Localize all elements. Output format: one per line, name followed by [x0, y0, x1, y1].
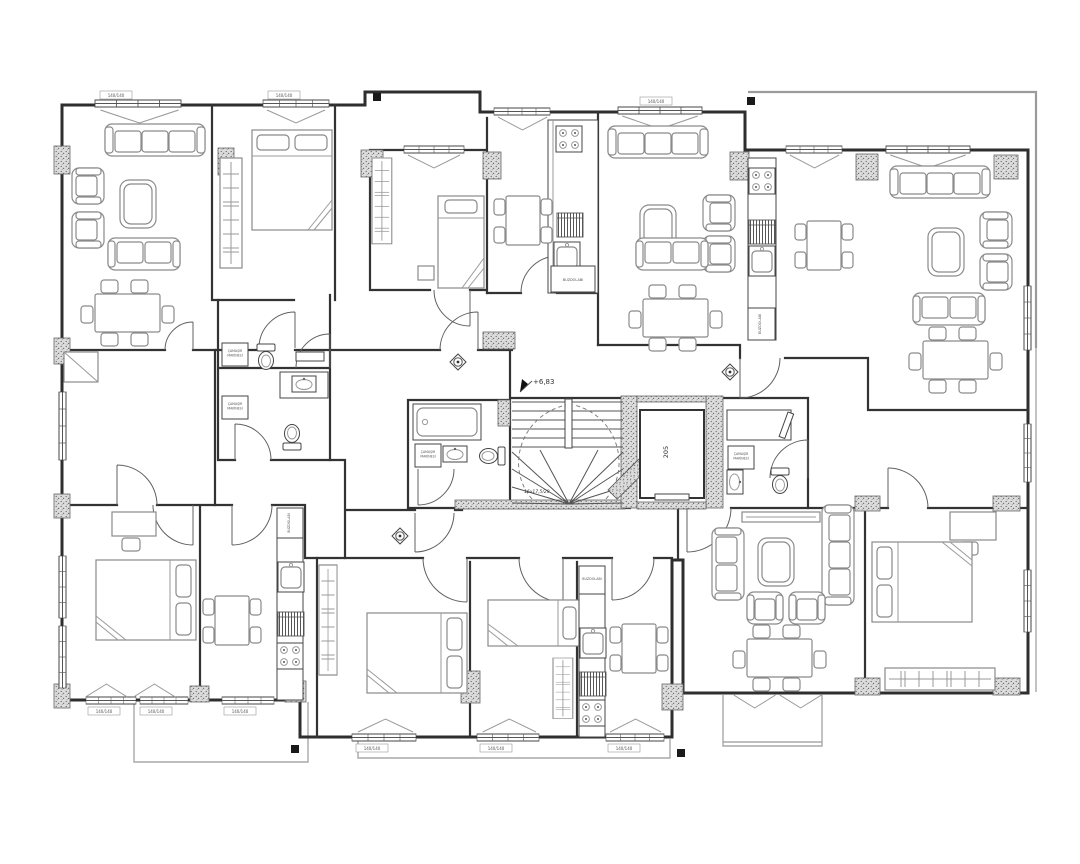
bathroom-left-2: ÇAMAŞIR MAKİNESİ	[222, 372, 328, 450]
bedroom-bottom-middle-2	[488, 600, 580, 719]
window-tag: 140/140	[148, 709, 165, 714]
fridge-label-1: BUZDOLABI	[563, 278, 584, 282]
bedroom-bottom-left	[96, 512, 196, 640]
bedroom-top-middle	[372, 158, 484, 288]
window-tag: 140/140	[616, 746, 633, 751]
kitchen-top-middle: BUZDOLABI	[494, 120, 598, 293]
fridge-label-2: BUZDOLABI	[758, 314, 762, 335]
kitchen-bottom-middle: BUZDOLABI	[579, 566, 668, 737]
living-top-middle-right	[608, 126, 735, 351]
level-label: +6,83	[533, 378, 554, 386]
bedroom-top-left	[220, 130, 332, 268]
level-marker: +6,83	[520, 378, 554, 392]
window-tag: 140/140	[488, 746, 505, 751]
fridge-label-4: BUZDOLABI	[582, 577, 601, 581]
living-bottom-right	[712, 505, 854, 691]
bathroom-left-1: ÇAMAŞIR MAKİNESİ	[222, 343, 324, 370]
kitchen-top-right: BUZDOLABI	[748, 158, 853, 340]
fridge-label-3: BUZDOLABI	[287, 513, 291, 532]
window-tag: 140/140	[648, 99, 665, 104]
window-tag: 140/140	[232, 709, 249, 714]
washer-label-3a: ÇAMAŞIR	[421, 450, 436, 454]
washer-label-4b: MAKİNESİ	[733, 456, 748, 461]
bathroom-core-left: ÇAMAŞIR MAKİNESİ	[413, 404, 505, 467]
window-tag: 140/140	[364, 746, 381, 751]
bathroom-core-right: ÇAMAŞIR MAKİNESİ	[727, 410, 794, 494]
bedroom-bottom-middle-1	[319, 565, 467, 693]
bedroom-bottom-right	[872, 512, 996, 690]
washer-label-2a: ÇAMAŞIR	[228, 402, 243, 406]
kitchen-bottom-left: BUZDOLABI	[203, 508, 304, 700]
washer-label-4a: ÇAMAŞIR	[734, 452, 749, 456]
apartment-top-left-living	[72, 124, 205, 346]
washer-label-1a: ÇAMAŞIR	[228, 349, 243, 353]
washer-label-2b: MAKİNESİ	[227, 406, 242, 411]
window-tag: 140/140	[108, 93, 125, 98]
entry-hall-left	[64, 352, 98, 382]
living-top-right	[890, 166, 1012, 393]
washer-label-3b: MAKİNESİ	[420, 454, 435, 459]
washer-label-1b: MAKİNESİ	[227, 353, 242, 358]
window-tag: 140/140	[96, 709, 113, 714]
elevator-room-label: 205	[662, 446, 670, 458]
elevator: 205	[640, 410, 704, 500]
window-tag: 140/140	[276, 93, 293, 98]
floor-plan-svg: 16x17,5/28 +6,83 205 BUZDOLABI BUZDOLABI	[0, 0, 1080, 864]
stair-note: 16x17,5/28	[524, 489, 550, 495]
floor-plan-page: 16x17,5/28 +6,83 205 BUZDOLABI BUZDOLABI	[0, 0, 1080, 864]
